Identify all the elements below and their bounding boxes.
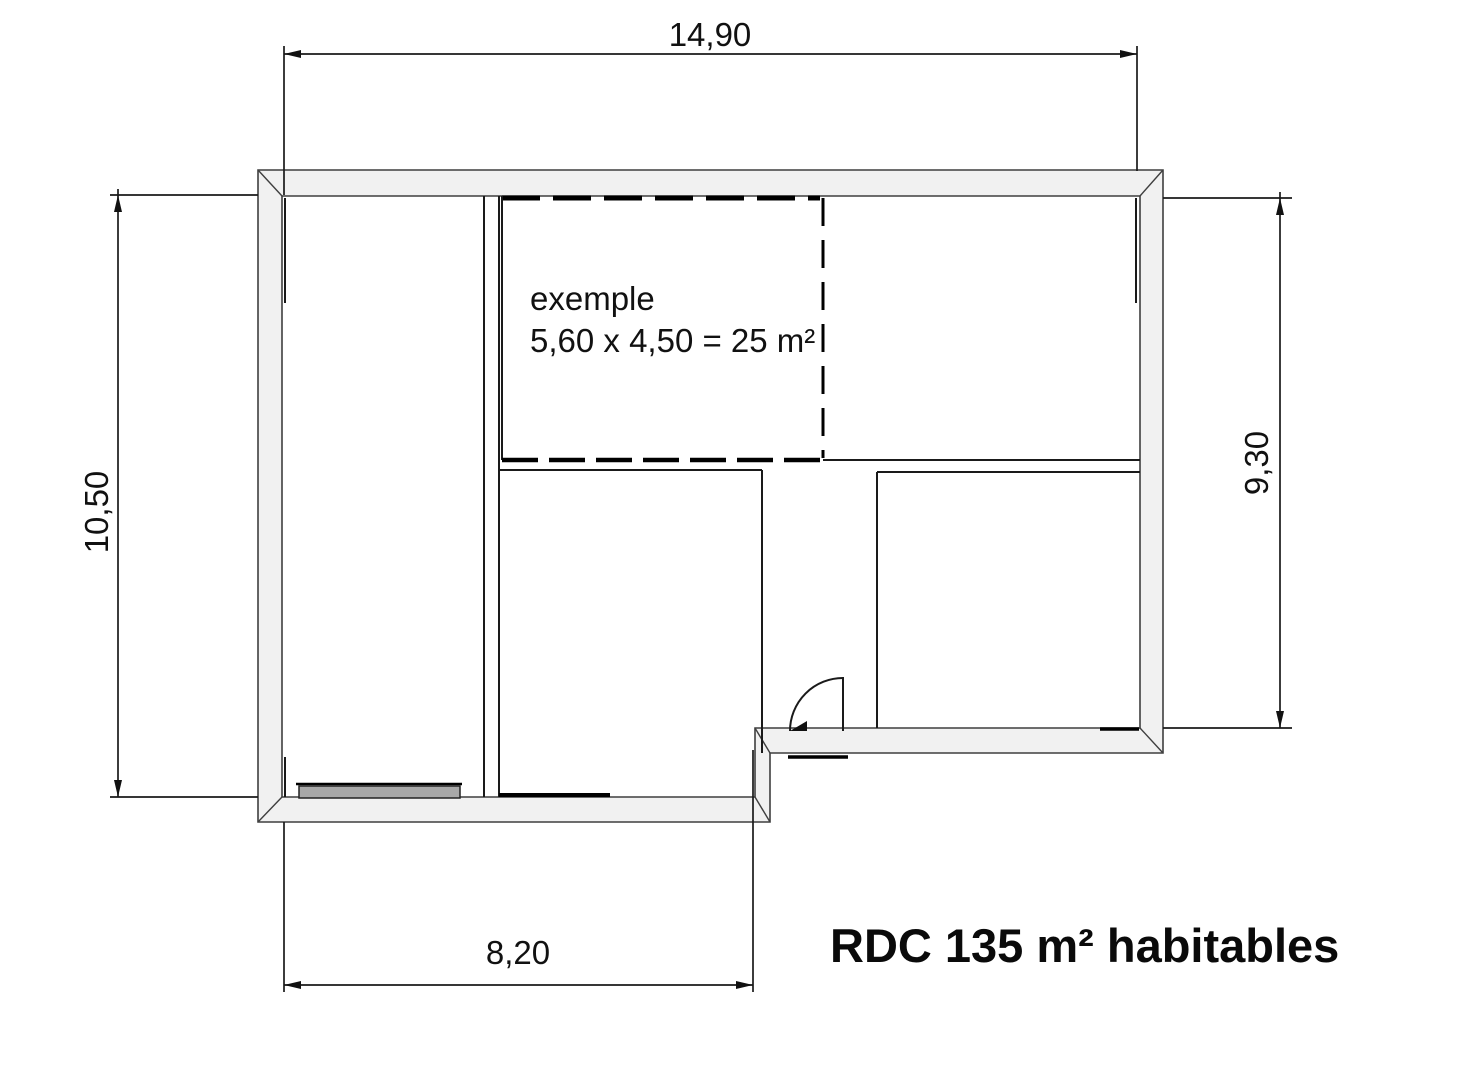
dimension-left-height: 10,50 <box>78 189 258 797</box>
example-room-calculation: 5,60 x 4,50 = 25 m² <box>530 322 815 359</box>
arrowhead-right <box>736 981 753 989</box>
arrowhead-left <box>284 50 301 58</box>
example-room-label: exemple <box>530 280 655 317</box>
dimension-label-left: 10,50 <box>78 471 115 554</box>
arrowhead-top <box>1276 198 1284 215</box>
door-swing-arc <box>790 678 843 731</box>
arrowhead-top <box>114 195 122 212</box>
dimension-top-width: 14,90 <box>284 16 1137 195</box>
garage-door-sill <box>296 784 462 798</box>
arrowhead-right <box>1120 50 1137 58</box>
arrowhead-left <box>284 981 301 989</box>
arrowhead-bottom <box>114 780 122 797</box>
arrowhead-bottom <box>1276 711 1284 728</box>
dimension-label-right: 9,30 <box>1238 431 1275 495</box>
garage-sill-rect <box>299 786 460 798</box>
dimension-right-height: 9,30 <box>1163 192 1292 728</box>
dimension-label-bottom: 8,20 <box>486 934 550 971</box>
floor-plan-drawing: 14,90 10,50 9,30 8,20 exemple 5,60 x 4,5… <box>0 0 1481 1080</box>
exterior-walls <box>258 170 1163 822</box>
wall-ring <box>258 170 1163 822</box>
interior-door <box>790 677 843 731</box>
dimension-label-top: 14,90 <box>669 16 752 53</box>
interior-partitions <box>285 196 1140 797</box>
annotations: exemple 5,60 x 4,50 = 25 m² RDC 135 m² h… <box>530 280 1339 972</box>
floor-summary-label: RDC 135 m² habitables <box>830 919 1339 972</box>
